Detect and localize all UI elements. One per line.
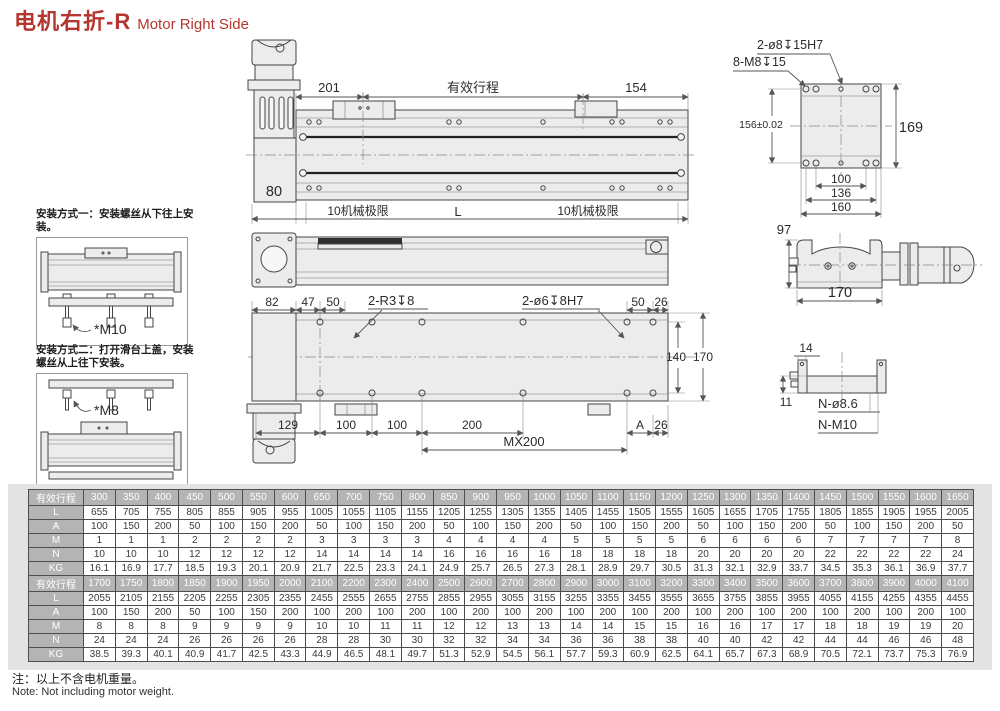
spec-value: 1255 [465, 506, 497, 520]
spec-value: 2 [274, 534, 306, 548]
install-note-1-box: *M10 [36, 237, 188, 346]
spec-value: 22 [846, 548, 878, 562]
spec-value: 16.1 [84, 562, 116, 576]
install-note-1-title: 安装方式一：安装螺丝从下往上安装。 [36, 208, 206, 234]
spec-value: 16.9 [115, 562, 147, 576]
spec-value: 150 [370, 520, 402, 534]
spec-value: 35.3 [846, 562, 878, 576]
spec-value: 3955 [783, 592, 815, 606]
stroke-value: 1350 [751, 490, 783, 506]
callout-n-threads: N-M10 [818, 417, 857, 432]
install-note-2: 安装方式二：打开滑台上盖，安装 螺丝从上往下安装。 *M8 [36, 344, 206, 488]
spec-value: 9 [274, 620, 306, 634]
label-mech-limit-left: 10机械极限 [327, 203, 388, 218]
spec-value: 2655 [370, 592, 402, 606]
spec-value: 14 [560, 620, 592, 634]
spec-value: 200 [656, 606, 688, 620]
spec-value: 20 [719, 548, 751, 562]
spec-value: 50 [687, 520, 719, 534]
spec-value: 21.7 [306, 562, 338, 576]
spec-value: 50 [942, 520, 974, 534]
spec-value: 15 [656, 620, 688, 634]
spec-value: 24 [147, 634, 179, 648]
spec-value: 18 [846, 620, 878, 634]
spec-value: 2355 [274, 592, 306, 606]
spec-value: 49.7 [401, 648, 433, 662]
spec-value: 9 [242, 620, 274, 634]
spec-value: 2755 [401, 592, 433, 606]
top-view-drawing: 201 有效行程 154 80 10机械极限 L 10机械极限 [246, 40, 696, 224]
spec-value: 2155 [147, 592, 179, 606]
spec-value: 2205 [179, 592, 211, 606]
spec-table-band: 有效行程300350400450500550600650700750800850… [8, 484, 992, 670]
dim-11: 11 [780, 395, 793, 409]
spec-value: 3455 [624, 592, 656, 606]
spec-value: 26.5 [497, 562, 529, 576]
spec-value: 26 [211, 634, 243, 648]
spec-value: 3 [306, 534, 338, 548]
dim-160-plate: 160 [831, 200, 851, 214]
spec-value: 68.9 [783, 648, 815, 662]
spec-value: 25.7 [465, 562, 497, 576]
spec-value: 3555 [656, 592, 688, 606]
spec-value: 20 [751, 548, 783, 562]
spec-value: 13 [528, 620, 560, 634]
spec-value: 1305 [497, 506, 529, 520]
spec-value: 14 [370, 548, 402, 562]
spec-value: 32.1 [719, 562, 751, 576]
spec-value: 6 [687, 534, 719, 548]
spec-value: 75.3 [910, 648, 942, 662]
spec-value: 5 [592, 534, 624, 548]
spec-value: 1705 [751, 506, 783, 520]
spec-value: 28 [338, 634, 370, 648]
spec-row: M1112222333344445555666677778 [29, 534, 974, 548]
spec-value: 200 [846, 606, 878, 620]
stroke-value: 1600 [910, 490, 942, 506]
spec-value: 28 [306, 634, 338, 648]
callout-pin-holes: 2-ø8↧15H7 [757, 38, 823, 52]
spec-value: 100 [687, 606, 719, 620]
spec-value: 12 [465, 620, 497, 634]
spec-value: 24 [942, 548, 974, 562]
stroke-value: 350 [115, 490, 147, 506]
spec-value: 64.1 [687, 648, 719, 662]
spec-value: 150 [751, 520, 783, 534]
spec-row: KG38.539.340.140.941.742.543.344.946.548… [29, 648, 974, 662]
spec-value: 100 [211, 606, 243, 620]
spec-value: 200 [147, 520, 179, 534]
spec-value: 16 [433, 548, 465, 562]
spec-value: 3055 [497, 592, 529, 606]
spec-value: 855 [211, 506, 243, 520]
stroke-value: 4100 [942, 576, 974, 592]
spec-value: 1155 [401, 506, 433, 520]
spec-value: 3 [370, 534, 402, 548]
spec-value: 100 [719, 520, 751, 534]
base-section-drawing: 14 11 N-ø8.6 N-M10 [780, 341, 886, 433]
spec-value: 6 [751, 534, 783, 548]
spec-value: 100 [878, 606, 910, 620]
spec-value: 100 [560, 606, 592, 620]
spec-value: 200 [656, 520, 688, 534]
spec-value: 100 [370, 606, 402, 620]
spec-row: L655705755805855905955100510551105115512… [29, 506, 974, 520]
stroke-value: 2000 [274, 576, 306, 592]
spec-value: 40 [687, 634, 719, 648]
stroke-value: 1750 [115, 576, 147, 592]
spec-value: 4 [528, 534, 560, 548]
spec-value: 54.5 [497, 648, 529, 662]
spec-value: 150 [242, 606, 274, 620]
spec-value: 5 [560, 534, 592, 548]
spec-value: 38 [624, 634, 656, 648]
spec-value: 60.9 [624, 648, 656, 662]
spec-value: 200 [910, 520, 942, 534]
spec-value: 200 [592, 606, 624, 620]
stroke-value: 950 [497, 490, 529, 506]
spec-value: 100 [84, 606, 116, 620]
spec-value: 100 [497, 606, 529, 620]
spec-value: 1 [147, 534, 179, 548]
callout-r3-holes: 2-R3↧8 [368, 293, 414, 308]
spec-value: 200 [465, 606, 497, 620]
spec-value: 3855 [751, 592, 783, 606]
stroke-value: 3800 [846, 576, 878, 592]
spec-value: 51.3 [433, 648, 465, 662]
spec-table: 有效行程300350400450500550600650700750800850… [28, 489, 974, 662]
spec-value: 40.9 [179, 648, 211, 662]
spec-value: 59.3 [592, 648, 624, 662]
spec-value: 48 [942, 634, 974, 648]
spec-row: A100150200501001502001002001002001002001… [29, 606, 974, 620]
spec-value: 18 [560, 548, 592, 562]
spec-value: 2255 [211, 592, 243, 606]
row-label: 有效行程 [29, 576, 84, 592]
spec-value: 12 [179, 548, 211, 562]
spec-value: 100 [211, 520, 243, 534]
label-effective-stroke: 有效行程 [447, 80, 499, 95]
spec-value: 18.5 [179, 562, 211, 576]
stroke-value: 1400 [783, 490, 815, 506]
spec-value: 30 [370, 634, 402, 648]
spec-value: 41.7 [211, 648, 243, 662]
spec-value: 200 [338, 606, 370, 620]
stroke-value: 1850 [179, 576, 211, 592]
spec-value: 2055 [84, 592, 116, 606]
stroke-value: 3200 [656, 576, 688, 592]
dim-82: 82 [265, 295, 279, 309]
spec-value: 1905 [878, 506, 910, 520]
spec-value: 6 [783, 534, 815, 548]
spec-value: 1105 [370, 506, 402, 520]
spec-value: 44 [846, 634, 878, 648]
dim-50-right: 50 [631, 295, 645, 309]
spec-value: 4355 [910, 592, 942, 606]
spec-value: 18 [624, 548, 656, 562]
spec-row: L205521052155220522552305235524552555265… [29, 592, 974, 606]
spec-value: 10 [338, 620, 370, 634]
spec-value: 200 [401, 520, 433, 534]
spec-value: 32 [433, 634, 465, 648]
spec-value: 10 [147, 548, 179, 562]
spec-value: 8 [84, 620, 116, 634]
spec-value: 100 [465, 520, 497, 534]
spec-value: 2 [242, 534, 274, 548]
spec-value: 42 [751, 634, 783, 648]
spec-value: 27.3 [528, 562, 560, 576]
stroke-value: 400 [147, 490, 179, 506]
spec-value: 16 [528, 548, 560, 562]
dim-A: A [636, 418, 644, 432]
spec-value: 2005 [942, 506, 974, 520]
section-view-drawing: 97 170 [777, 222, 982, 306]
spec-row: KG16.116.917.718.519.320.120.921.722.523… [29, 562, 974, 576]
spec-value: 20.9 [274, 562, 306, 576]
spec-value: 12 [242, 548, 274, 562]
spec-value: 200 [783, 606, 815, 620]
spec-value: 18 [656, 548, 688, 562]
spec-value: 36 [592, 634, 624, 648]
datasheet-page: 电机右折-RMotor Right Side [0, 0, 1000, 711]
spec-value: 36 [560, 634, 592, 648]
spec-value: 100 [592, 520, 624, 534]
spec-value: 16 [687, 620, 719, 634]
stroke-header-row: 有效行程170017501800185019001950200021002200… [29, 576, 974, 592]
spec-value: 20 [687, 548, 719, 562]
spec-value: 5 [624, 534, 656, 548]
spec-value: 12 [211, 548, 243, 562]
stroke-value: 1500 [846, 490, 878, 506]
spec-value: 22 [910, 548, 942, 562]
spec-value: 18 [814, 620, 846, 634]
spec-value: 42 [783, 634, 815, 648]
spec-value: 36.1 [878, 562, 910, 576]
dim-100-b: 100 [387, 418, 407, 432]
install-note-2-title-line1: 安装方式二：打开滑台上盖，安装 [36, 344, 206, 357]
spec-value: 62.5 [656, 648, 688, 662]
spec-value: 18 [592, 548, 624, 562]
spec-value: 8 [942, 534, 974, 548]
spec-value: 14 [306, 548, 338, 562]
spec-value: 42.5 [242, 648, 274, 662]
spec-value: 4 [497, 534, 529, 548]
stroke-value: 1650 [942, 490, 974, 506]
spec-value: 36.9 [910, 562, 942, 576]
stroke-value: 3000 [592, 576, 624, 592]
spec-value: 805 [179, 506, 211, 520]
stroke-value: 1000 [528, 490, 560, 506]
spec-value: 11 [401, 620, 433, 634]
spec-value: 2105 [115, 592, 147, 606]
spec-value: 200 [274, 606, 306, 620]
stroke-value: 1150 [624, 490, 656, 506]
install-note-2-box: *M8 [36, 373, 188, 488]
footnote: 注：以上不含电机重量。 Note: Not including motor we… [12, 672, 174, 700]
stroke-value: 550 [242, 490, 274, 506]
row-label: M [29, 620, 84, 634]
spec-value: 1 [115, 534, 147, 548]
stroke-value: 1550 [878, 490, 910, 506]
spec-value: 50 [179, 606, 211, 620]
spec-value: 200 [528, 520, 560, 534]
spec-value: 17 [783, 620, 815, 634]
spec-value: 4 [433, 534, 465, 548]
spec-value: 100 [846, 520, 878, 534]
plate-view-drawing: 2-ø8↧15H7 8-M8↧15 156±0.02 169 100 [733, 38, 923, 218]
dim-170-right: 170 [693, 350, 713, 364]
spec-value: 56.1 [528, 648, 560, 662]
spec-value: 3 [338, 534, 370, 548]
spec-value: 200 [719, 606, 751, 620]
spec-value: 3655 [687, 592, 719, 606]
spec-value: 1455 [592, 506, 624, 520]
stroke-value: 2700 [497, 576, 529, 592]
stroke-value: 1250 [687, 490, 719, 506]
spec-value: 200 [910, 606, 942, 620]
install-note-2-figure: *M8 [37, 374, 185, 482]
spec-value: 7 [910, 534, 942, 548]
dim-156-tol: 156±0.02 [739, 119, 783, 131]
spec-value: 4255 [878, 592, 910, 606]
spec-row: M888999910101111121213131414151516161717… [29, 620, 974, 634]
stroke-value: 650 [306, 490, 338, 506]
stroke-value: 600 [274, 490, 306, 506]
spec-value: 11 [370, 620, 402, 634]
spec-value: 50 [306, 520, 338, 534]
spec-value: 2455 [306, 592, 338, 606]
spec-value: 22 [814, 548, 846, 562]
spec-value: 43.3 [274, 648, 306, 662]
spec-value: 26 [179, 634, 211, 648]
spec-value: 44.9 [306, 648, 338, 662]
spec-value: 20 [942, 620, 974, 634]
stroke-value: 1100 [592, 490, 624, 506]
dim-mx200: MX200 [503, 434, 544, 449]
stroke-value: 2400 [401, 576, 433, 592]
spec-value: 3 [401, 534, 433, 548]
spec-value: 32.9 [751, 562, 783, 576]
dim-80: 80 [266, 184, 282, 200]
spec-value: 1055 [338, 506, 370, 520]
dim-140: 140 [666, 350, 686, 364]
spec-value: 955 [274, 506, 306, 520]
install-note-1: 安装方式一：安装螺丝从下往上安装。 [36, 208, 206, 346]
stroke-value: 1950 [242, 576, 274, 592]
stroke-value: 450 [179, 490, 211, 506]
spec-value: 4 [465, 534, 497, 548]
spec-value: 24 [84, 634, 116, 648]
stroke-value: 1050 [560, 490, 592, 506]
stroke-header-row: 有效行程300350400450500550600650700750800850… [29, 490, 974, 506]
spec-value: 50 [179, 520, 211, 534]
dim-100-a: 100 [336, 418, 356, 432]
stroke-value: 3300 [687, 576, 719, 592]
spec-value: 10 [115, 548, 147, 562]
spec-value: 70.5 [814, 648, 846, 662]
spec-value: 50 [560, 520, 592, 534]
spec-value: 2305 [242, 592, 274, 606]
spec-value: 26 [274, 634, 306, 648]
spec-value: 100 [433, 606, 465, 620]
install-note-1-figure: *M10 [37, 238, 185, 340]
spec-value: 150 [497, 520, 529, 534]
spec-value: 46 [878, 634, 910, 648]
spec-value: 19 [878, 620, 910, 634]
spec-value: 14 [592, 620, 624, 634]
footnote-english: Note: Not including motor weight. [12, 686, 174, 699]
stroke-value: 300 [84, 490, 116, 506]
dim-26-bottom: 26 [654, 418, 668, 432]
spec-value: 3255 [560, 592, 592, 606]
spec-value: 100 [306, 606, 338, 620]
dim-200: 200 [462, 418, 482, 432]
spec-value: 100 [814, 606, 846, 620]
spec-value: 2 [211, 534, 243, 548]
spec-value: 16 [497, 548, 529, 562]
stroke-value: 1200 [656, 490, 688, 506]
spec-value: 28.1 [560, 562, 592, 576]
stroke-value: 3700 [814, 576, 846, 592]
spec-value: 3355 [592, 592, 624, 606]
spec-value: 12 [433, 620, 465, 634]
spec-value: 1755 [783, 506, 815, 520]
stroke-value: 3900 [878, 576, 910, 592]
install-note-2-title-line2: 螺丝从上往下安装。 [36, 357, 206, 370]
dim-47: 47 [301, 295, 315, 309]
stroke-value: 500 [211, 490, 243, 506]
spec-value: 1605 [687, 506, 719, 520]
callout-n-holes: N-ø8.6 [818, 396, 858, 411]
spec-value: 50 [433, 520, 465, 534]
spec-value: 100 [624, 606, 656, 620]
spec-value: 150 [242, 520, 274, 534]
spec-value: 8 [147, 620, 179, 634]
row-label: KG [29, 648, 84, 662]
spec-value: 34 [497, 634, 529, 648]
spec-value: 4455 [942, 592, 974, 606]
dim-169: 169 [899, 120, 923, 136]
stroke-value: 2300 [370, 576, 402, 592]
spec-value: 17.7 [147, 562, 179, 576]
spec-value: 22 [878, 548, 910, 562]
spec-value: 1405 [560, 506, 592, 520]
spec-value: 73.7 [878, 648, 910, 662]
label-mech-limit-right: 10机械极限 [557, 203, 618, 218]
spec-value: 24.1 [401, 562, 433, 576]
dim-26-top: 26 [654, 295, 668, 309]
spec-value: 100 [338, 520, 370, 534]
spec-value: 100 [942, 606, 974, 620]
spec-value: 150 [115, 520, 147, 534]
footnote-chinese: 注：以上不含电机重量。 [12, 672, 174, 686]
spec-value: 9 [179, 620, 211, 634]
spec-value: 65.7 [719, 648, 751, 662]
spec-value: 150 [878, 520, 910, 534]
spec-value: 34.5 [814, 562, 846, 576]
spec-value: 1355 [528, 506, 560, 520]
row-label: N [29, 634, 84, 648]
spec-value: 14 [338, 548, 370, 562]
spec-value: 4055 [814, 592, 846, 606]
row-label: N [29, 548, 84, 562]
spec-value: 1505 [624, 506, 656, 520]
spec-value: 1555 [656, 506, 688, 520]
callout-thread-holes: 8-M8↧15 [733, 55, 786, 69]
spec-value: 48.1 [370, 648, 402, 662]
spec-value: 4155 [846, 592, 878, 606]
dim-L: L [454, 204, 461, 219]
